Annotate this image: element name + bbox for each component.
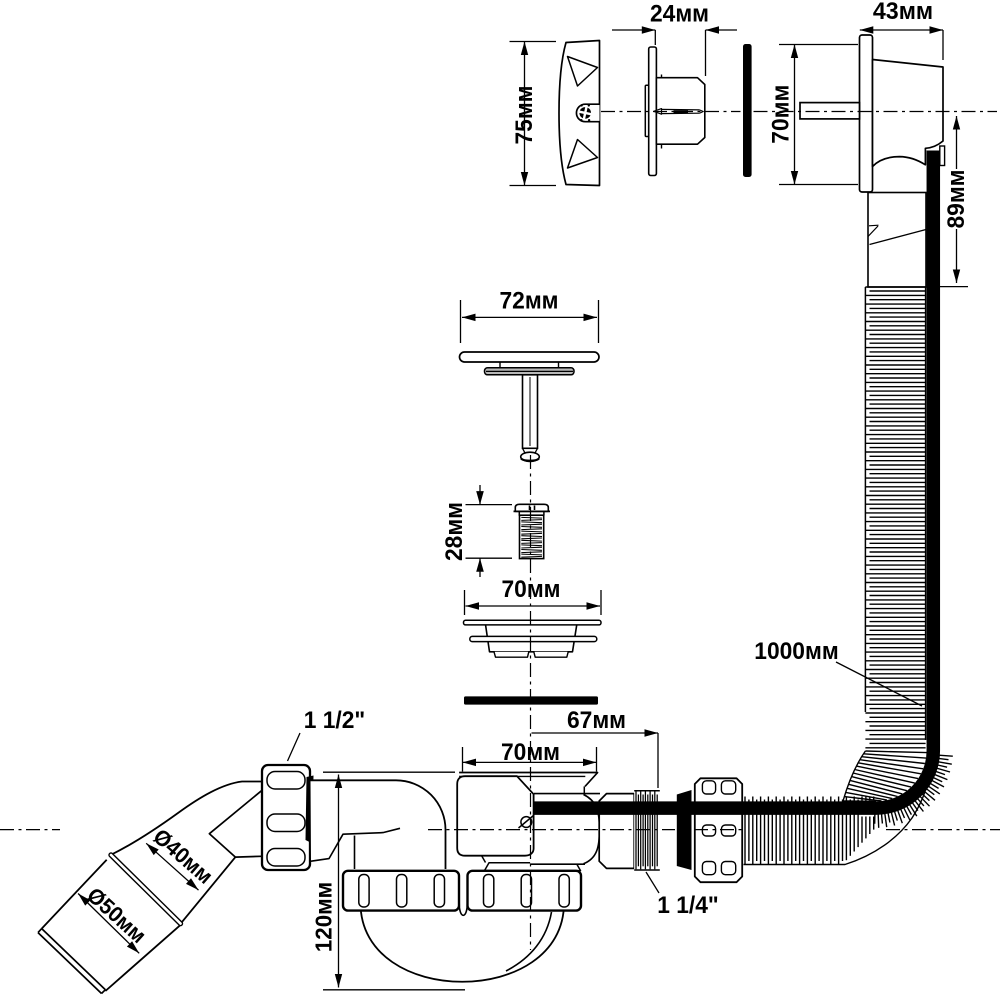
svg-text:28мм: 28мм bbox=[441, 502, 468, 561]
svg-text:1 1/4": 1 1/4" bbox=[657, 892, 718, 919]
svg-text:120мм: 120мм bbox=[310, 882, 337, 952]
svg-text:67мм: 67мм bbox=[567, 707, 626, 734]
svg-text:1 1/2": 1 1/2" bbox=[304, 707, 365, 734]
svg-text:70мм: 70мм bbox=[501, 576, 560, 603]
svg-text:70мм: 70мм bbox=[767, 85, 794, 144]
svg-text:89мм: 89мм bbox=[943, 169, 970, 228]
svg-text:70мм: 70мм bbox=[501, 739, 560, 766]
svg-text:72мм: 72мм bbox=[499, 287, 558, 314]
svg-text:43мм: 43мм bbox=[873, 0, 933, 25]
svg-text:1000мм: 1000мм bbox=[754, 638, 838, 665]
svg-text:75мм: 75мм bbox=[510, 85, 537, 144]
svg-text:24мм: 24мм bbox=[650, 0, 709, 27]
